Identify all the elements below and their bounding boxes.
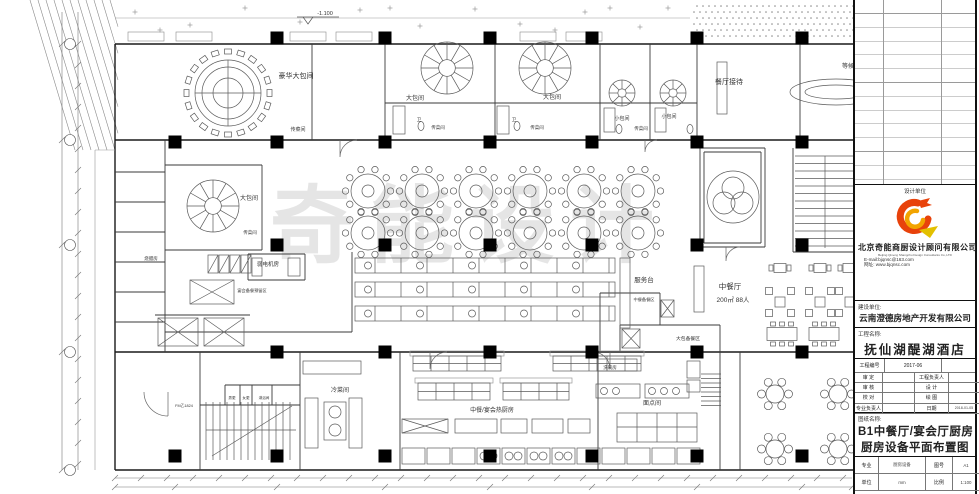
room-label: 冷菜间 — [331, 386, 349, 394]
room-label: 卫 — [417, 117, 422, 122]
company-name-en: Beijing Qineng Shangchu Design Consultan… — [864, 253, 967, 257]
drawing-name-line2: 厨房设备平面布置图 — [858, 439, 972, 455]
room-label: 洗碗房 — [603, 364, 617, 371]
room-label: 传菜间 — [634, 125, 648, 132]
floor-plan: 奇能设计 -1.100 豪华大包间大包间大包间小包间小包间传菜间传菜间传菜间传菜… — [0, 0, 856, 494]
approval-table: 工程编号 2017-06 审 定 工程负责人 审 核 设 计 校 对 绘 图 专… — [855, 359, 975, 413]
design-label: 设 计 — [915, 383, 949, 393]
room-label: 大包备餐区 — [676, 335, 700, 342]
unit-value: mm — [879, 474, 926, 491]
room-label: 服务台 — [634, 275, 654, 284]
client-section: 建设单位: 云南澄德房地产开发有限公司 — [855, 301, 975, 328]
drawing-sheet: 奇能设计 -1.100 豪华大包间大包间大包间小包间小包间传菜间传菜间传菜间传菜… — [0, 0, 979, 494]
drawing-name-section: 图纸名称: B1中餐厅/宴会厅厨房 厨房设备平面布置图 — [855, 413, 975, 457]
design-unit-label: 设计单位 — [858, 187, 972, 195]
room-label: 弱电机房 — [257, 260, 280, 268]
fig-no-label: 图号 — [926, 457, 953, 474]
approve-label: 审 定 — [855, 373, 883, 383]
room-label: 传菜间 — [431, 124, 445, 131]
proof-label: 校 对 — [855, 393, 883, 403]
room-label: 大包间 — [240, 194, 258, 202]
revision-table — [855, 0, 975, 185]
room-label: 烧腊房 — [144, 255, 158, 262]
room-label: 淋浴间 — [259, 395, 270, 400]
room-label: 中餐/宴会热厨房 — [470, 406, 514, 414]
project-no: 2017-06 — [885, 359, 942, 372]
design-unit-section: 设计单位 北京奇能商厨设计顾问有限公司 Beijing Qineng Shang… — [855, 185, 975, 301]
room-label: 豪华大包间 — [279, 71, 314, 80]
room-label: 中餐厅 — [719, 281, 742, 291]
room-label: 大包间 — [406, 94, 424, 102]
room-label: 小包间 — [661, 113, 676, 120]
draft-label: 绘 图 — [915, 393, 949, 403]
room-label: 传菜间 — [243, 229, 257, 236]
project-section: 工程名称: 抚仙湖醍湖酒店 — [855, 328, 975, 359]
project-name: 抚仙湖醍湖酒店 — [858, 339, 972, 358]
room-label: 宴会备餐预留区 — [237, 287, 266, 294]
project-no-label: 工程编号 — [855, 359, 885, 372]
room-label: FM乙1824 — [175, 403, 193, 408]
room-label: 卫 — [512, 117, 517, 122]
room-label: 面点间 — [643, 399, 661, 407]
project-label: 工程名称: — [858, 330, 972, 338]
client-name: 云南澄德房地产开发有限公司 — [858, 312, 972, 324]
room-label: 中餐备餐区 — [634, 296, 655, 303]
room-label: 男更 — [228, 395, 236, 400]
elevation-marker: -1.100 — [297, 11, 339, 24]
svg-text:-1.100: -1.100 — [317, 11, 333, 17]
room-label: 餐厅接待 — [715, 77, 743, 86]
drawing-name-line1: B1中餐厅/宴会厅厨房 — [858, 423, 972, 439]
room-label: 200㎡ 88人 — [717, 295, 750, 304]
unit-label: 单位 — [855, 474, 879, 491]
room-label: 小包间 — [614, 115, 629, 122]
room-label: 女更 — [242, 395, 250, 400]
room-label: 传菜间 — [530, 124, 544, 131]
company-logo-icon — [890, 197, 940, 241]
fig-no-value: A1 — [953, 457, 979, 474]
drawing-name-label: 图纸名称: — [858, 415, 972, 423]
pm-label: 工程负责人 — [915, 373, 949, 383]
title-block: 设计单位 北京奇能商厨设计顾问有限公司 Beijing Qineng Shang… — [853, 0, 977, 494]
company-name: 北京奇能商厨设计顾问有限公司 — [858, 242, 972, 253]
spec-label: 专业 — [855, 457, 879, 474]
scale-label: 比例 — [926, 474, 953, 491]
room-label: 大包间 — [543, 93, 561, 101]
room-label: 传菜间 — [290, 126, 305, 133]
review-label: 审 核 — [855, 383, 883, 393]
company-website: 网址: www.bjqnsc.com — [864, 262, 972, 268]
spec-table: 专业 厨房设备 图号 A1 单位 mm 比例 1:100 — [855, 457, 975, 491]
scale-value: 1:100 — [953, 474, 979, 491]
spec-value: 厨房设备 — [879, 457, 926, 474]
client-label: 建设单位: — [858, 303, 972, 311]
watermark: 奇能设计 — [270, 179, 670, 273]
